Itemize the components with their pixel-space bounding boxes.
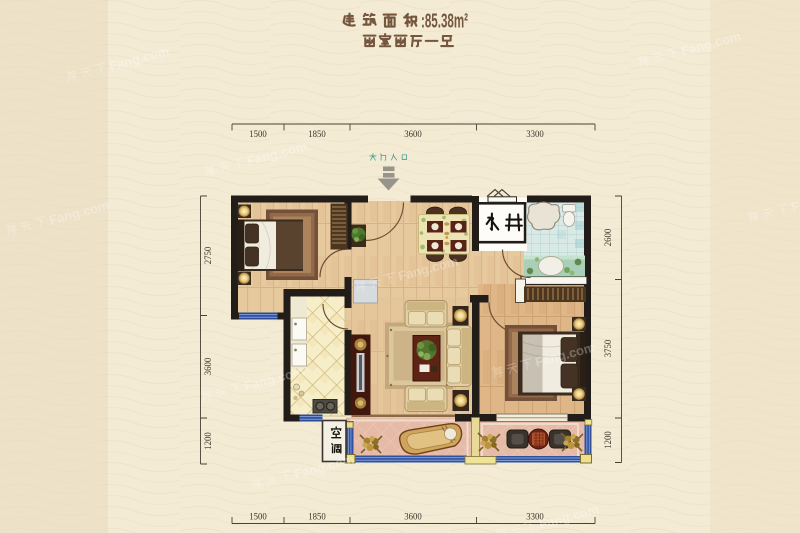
svg-text:1850: 1850 xyxy=(308,513,326,523)
svg-text:1850: 1850 xyxy=(308,130,326,140)
svg-text:1200: 1200 xyxy=(604,431,614,449)
svg-text:3600: 3600 xyxy=(404,513,422,523)
svg-text:3300: 3300 xyxy=(526,130,544,140)
svg-text:2600: 2600 xyxy=(604,229,614,247)
svg-text:2750: 2750 xyxy=(204,247,214,265)
svg-text:3600: 3600 xyxy=(404,130,422,140)
svg-text:1500: 1500 xyxy=(249,130,267,140)
svg-text:3750: 3750 xyxy=(604,340,614,358)
svg-text:1200: 1200 xyxy=(204,432,214,450)
svg-text::85.38m²: :85.38m² xyxy=(421,10,468,33)
svg-text:3600: 3600 xyxy=(204,358,214,376)
svg-text:1500: 1500 xyxy=(249,513,267,523)
